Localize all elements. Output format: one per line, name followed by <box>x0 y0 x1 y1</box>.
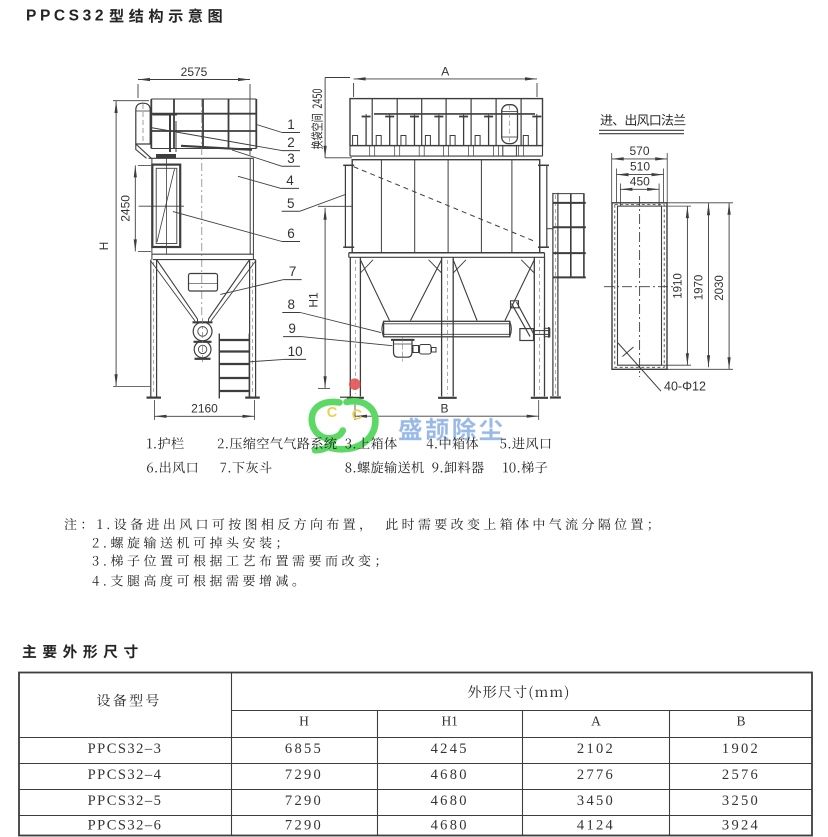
svg-text:7290: 7290 <box>285 818 323 834</box>
svg-text:6855: 6855 <box>285 741 323 757</box>
svg-text:4: 4 <box>286 173 294 188</box>
svg-text:7: 7 <box>289 264 297 279</box>
svg-text:H: H <box>97 242 111 251</box>
svg-text:B: B <box>440 402 448 416</box>
svg-text:H1: H1 <box>441 714 458 729</box>
svg-text:A: A <box>591 714 601 729</box>
svg-text:5: 5 <box>287 196 295 211</box>
svg-text:1910: 1910 <box>673 273 685 299</box>
svg-text:C: C <box>352 408 363 424</box>
svg-text:7290: 7290 <box>285 793 323 809</box>
svg-text:2: 2 <box>287 135 295 150</box>
svg-text:1: 1 <box>287 117 295 132</box>
svg-text:A: A <box>441 64 449 78</box>
svg-text:B: B <box>736 714 745 729</box>
svg-text:4680: 4680 <box>431 793 469 809</box>
svg-text:4680: 4680 <box>431 767 469 783</box>
svg-text:4245: 4245 <box>431 741 469 757</box>
svg-text:3250: 3250 <box>722 793 760 809</box>
svg-text:2576: 2576 <box>722 767 760 783</box>
svg-text:PPCS32–6: PPCS32–6 <box>88 818 163 834</box>
svg-text:4124: 4124 <box>577 818 615 834</box>
svg-text:3: 3 <box>287 151 295 166</box>
svg-text:2575: 2575 <box>181 65 208 79</box>
svg-text:510: 510 <box>630 160 650 174</box>
svg-text:6: 6 <box>287 226 295 241</box>
svg-text:2160: 2160 <box>191 402 218 416</box>
svg-text:450: 450 <box>630 174 650 188</box>
svg-text:2030: 2030 <box>714 275 726 301</box>
svg-text:2102: 2102 <box>577 741 615 757</box>
svg-text:1970: 1970 <box>694 275 706 301</box>
svg-text:H1: H1 <box>307 292 321 308</box>
svg-text:7290: 7290 <box>285 767 323 783</box>
svg-text:4680: 4680 <box>431 818 469 834</box>
svg-text:9: 9 <box>288 321 296 336</box>
svg-text:10: 10 <box>288 344 303 359</box>
svg-text:PPCS32–3: PPCS32–3 <box>88 741 163 757</box>
svg-text:3450: 3450 <box>577 793 615 809</box>
svg-text:H: H <box>299 714 309 729</box>
svg-text:8: 8 <box>288 297 296 312</box>
svg-text:1902: 1902 <box>722 741 760 757</box>
svg-text:PPCS32–5: PPCS32–5 <box>88 793 163 809</box>
svg-text:C: C <box>327 405 338 421</box>
svg-text:2450: 2450 <box>119 195 133 222</box>
svg-text:570: 570 <box>629 144 649 158</box>
svg-text:PPCS32: PPCS32 <box>26 8 107 25</box>
svg-text:3924: 3924 <box>722 818 760 834</box>
svg-text:40-Φ12: 40-Φ12 <box>664 380 706 394</box>
svg-text:2776: 2776 <box>577 767 615 783</box>
svg-text:PPCS32–4: PPCS32–4 <box>88 767 163 783</box>
